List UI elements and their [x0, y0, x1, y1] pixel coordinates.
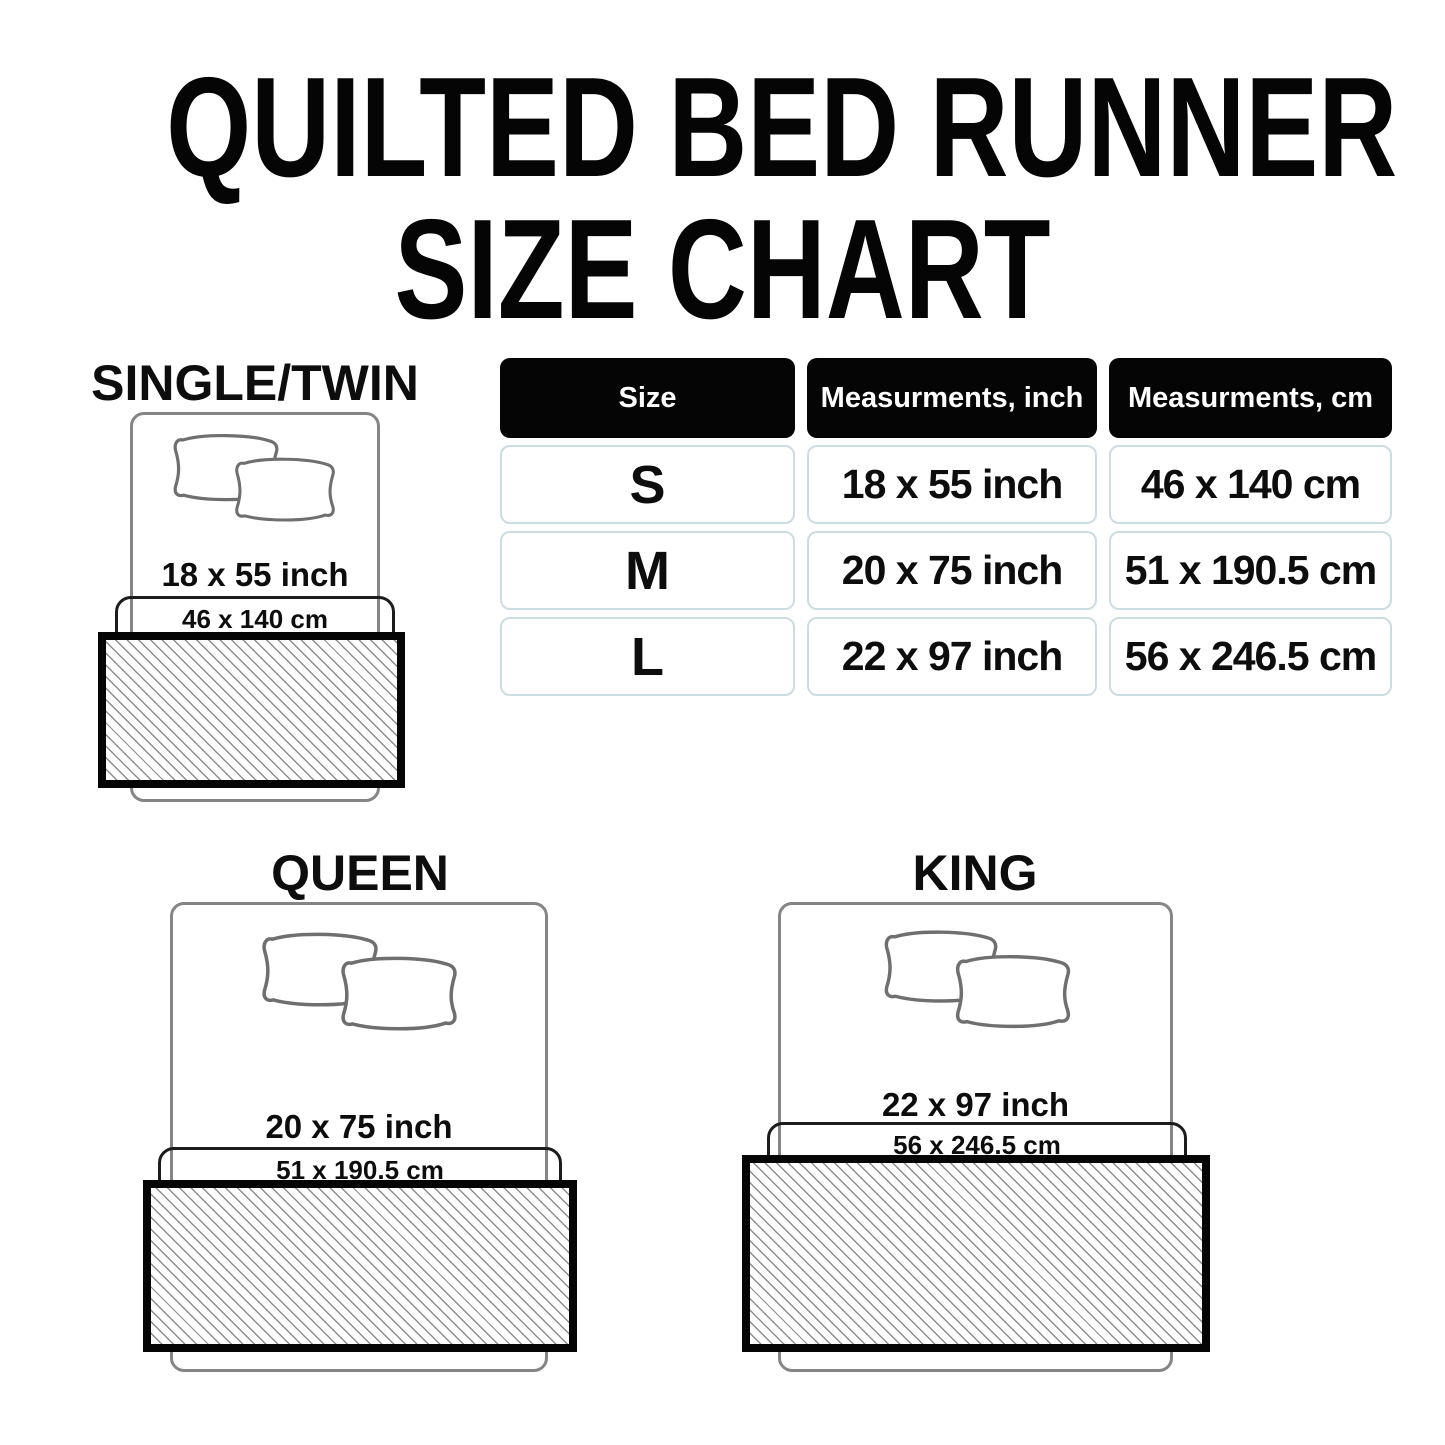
pillows-icon [880, 924, 1075, 1036]
table-header-size: Size [500, 358, 795, 438]
runner-size-inch-label: 18 x 55 inch [130, 556, 380, 594]
bed-diagram-single-twin: SINGLE/TWIN 18 x 55 inch 46 x 140 cm [85, 350, 425, 820]
runner-size-inch-label: 22 x 97 inch [778, 1086, 1173, 1124]
table-cell-size-l: L [500, 617, 795, 696]
table-header-cm: Measurments, cm [1109, 358, 1392, 438]
table-cell-size-s: S [500, 445, 795, 524]
table-cell-inch-m: 20 x 75 inch [807, 531, 1097, 610]
page-title-line2: SIZE CHART [166, 199, 1279, 341]
table-cell-inch-l: 22 x 97 inch [807, 617, 1097, 696]
table-cell-inch-s: 18 x 55 inch [807, 445, 1097, 524]
diagram-label-single-twin: SINGLE/TWIN [85, 354, 425, 412]
front-pillow-icon [958, 957, 1069, 1027]
table-cell-size-m: M [500, 531, 795, 610]
table-cell-cm-m: 51 x 190.5 cm [1109, 531, 1392, 610]
bed-diagram-queen: QUEEN 20 x 75 inch 51 x 190.5 cm [130, 840, 590, 1385]
bed-runner-hatched [143, 1180, 577, 1352]
runner-size-inch-label: 20 x 75 inch [170, 1108, 548, 1146]
table-cell-cm-l: 56 x 246.5 cm [1109, 617, 1392, 696]
bed-runner-hatched [98, 632, 405, 788]
diagram-label-king: KING [715, 844, 1235, 902]
pillows-icon [170, 426, 340, 528]
size-table: Size Measurments, inch Measurments, cm S… [500, 358, 1392, 696]
table-cell-cm-s: 46 x 140 cm [1109, 445, 1392, 524]
size-chart-infographic: QUILTED BED RUNNERSIZE CHART Size Measur… [0, 0, 1445, 1445]
runner-size-cm-label: 46 x 140 cm [115, 604, 395, 635]
bed-diagram-king: KING 22 x 97 inch 56 x 246.5 cm [715, 840, 1235, 1385]
front-pillow-icon [237, 459, 334, 520]
table-header-inch: Measurments, inch [807, 358, 1097, 438]
front-pillow-icon [343, 958, 455, 1028]
page-title: QUILTED BED RUNNERSIZE CHART [0, 57, 1445, 341]
page-title-line1: QUILTED BED RUNNER [166, 57, 1279, 199]
bed-runner-hatched [742, 1155, 1210, 1352]
pillows-icon [255, 926, 463, 1038]
diagram-label-queen: QUEEN [130, 844, 590, 902]
